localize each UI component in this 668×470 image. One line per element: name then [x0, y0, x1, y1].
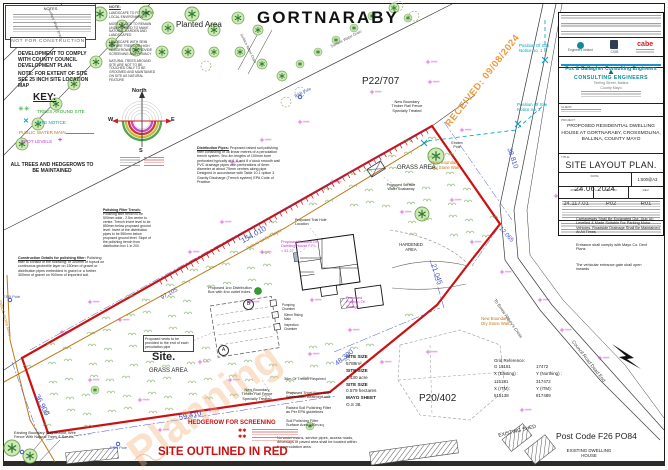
pumping-chamber-label: Pumping Chamber — [282, 304, 308, 312]
scale-value: 1:500@A3 — [633, 177, 662, 182]
landscape-note-p1: LANDSCAPE TO FIT IN WITH LOCAL ENVIRONME… — [109, 12, 158, 20]
title-block: Engineers Ireland CIOB cabe Fox & Gallag… — [558, 12, 664, 236]
cabe-tagline — [636, 49, 654, 54]
vents-note: Proposed vents to be provided to the end… — [143, 335, 194, 352]
key-water-main-line — [66, 133, 94, 134]
compass-west: W — [108, 117, 113, 123]
cabe-logo: cabe — [636, 41, 654, 54]
carriageway-note: Carriageway Shall Be Excavated Out, Dug … — [576, 217, 660, 235]
job-number-row: JOB NO.24.117.01 DRG NO.P02 REV.R01 — [559, 187, 663, 199]
compass-south: S — [139, 148, 143, 154]
hedgerow-tree-icons: ✱✱✱✱ — [238, 429, 246, 441]
rev-cell: REV.R01 — [629, 187, 663, 198]
landscape-note-p2: MOST OF SITE TO REMAIN UNDISTURBED TO MA… — [109, 23, 158, 39]
key-trees-label: TREES AROUND SITE — [37, 109, 85, 114]
ciob-crest-icon — [610, 40, 618, 49]
mayo-sheet-label: MAYO SHEET — [346, 395, 392, 402]
gate-note: The vehicular entrance gate shall open i… — [576, 263, 648, 272]
grid-ref-itm-x-label: X (ITM): — [494, 386, 536, 391]
logo-row: Engineers Ireland CIOB cabe — [559, 38, 663, 57]
compass-north-label: North — [132, 88, 147, 94]
key-water-main-label: PUBLIC WATER MAIN — [19, 130, 66, 135]
grid-ref-easting-label: X (Easting) : — [494, 371, 536, 376]
grid-ref-easting: 115181 — [494, 379, 536, 384]
mayo-sheet-value: O.S 38. — [346, 402, 392, 409]
compass-east: E — [171, 117, 175, 123]
townland-title: GORTNARABY — [257, 8, 399, 28]
trees-maintained-note: ALL TREES AND HEDGEROWS TO BE MAINTAINED — [10, 163, 94, 175]
extent-note: NOTE: FOR EXTENT OF SITE SEE 25 INCH SIT… — [18, 72, 94, 90]
filter-area-note: Soil Polishing Filter Surface Area 140m.… — [286, 419, 332, 428]
raised-filter-note: Raised Soil Polishing Filter as Per EPA … — [286, 406, 332, 415]
polishing-trench-note: Polishing Filter Trench: Polishing filte… — [103, 208, 155, 248]
org-address-2: County Mayo — [559, 86, 663, 91]
landscape-note: NOTE: LANDSCAPE TO FIT IN WITH LOCAL ENV… — [109, 5, 158, 83]
key-spot-levels-icon: + — [58, 137, 62, 145]
consulting-engineer-block: ▲ CONSULTING ENGINEERS Teeling Street, B… — [559, 68, 663, 104]
distribution-pipes-note: Distribution Pipes: Proposed raised soil… — [197, 146, 281, 184]
landscape-note-title: NOTE: — [109, 5, 121, 9]
dwelling-position-label: Proposed Position Of Dwelling House F.F.… — [281, 240, 317, 253]
grid-reference-title: Grid Reference: — [494, 358, 578, 363]
notes-micro-text-2 — [13, 26, 91, 33]
key-spot-levels-label: SPOT LEVELS — [21, 139, 52, 144]
esb-pole-label-3: ESB Pole — [110, 446, 127, 451]
date-scale-row: DATE:24.06.2024 1:500@A3 — [559, 173, 663, 187]
new-boundary-fence-label-2: New Boundary Timber Rail Fence Specially… — [239, 388, 275, 401]
percolation-marker-b: B — [243, 299, 254, 310]
compass-legend-right — [144, 157, 164, 167]
site-size-r2-value: 1.430 acre — [346, 375, 392, 382]
drg-cell: DRG NO.P02 — [594, 187, 629, 198]
grass-area-label-2: GRASS AREA — [149, 368, 188, 375]
date-label: DATE: — [560, 174, 630, 178]
planted-area-label: Planted Area — [176, 20, 222, 29]
drawing-title-label: TITLE: — [561, 155, 661, 159]
existing-boundary-note: Existing Boundary Clay Mound, Wire Fence… — [14, 431, 76, 440]
esb-pole-label-2: ESB Pole — [3, 295, 20, 300]
percolation-marker-a: A — [218, 345, 229, 356]
development-note: DEVELOPMENT TO COMPLY WITH COUNTY COUNCI… — [18, 52, 94, 70]
site-label: Site. — [152, 351, 175, 364]
trial-hole-label: Proposed Trial Hole Location — [295, 218, 327, 226]
key-site-notice-icon: ✕ — [23, 118, 29, 126]
grid-ref-itm-y-label: Y (ITM): — [536, 386, 578, 391]
inspection-chamber-label: Inspection Chamber — [284, 324, 310, 332]
hardened-area-label: HARDENED AREA — [397, 243, 425, 253]
project-label: PROJECT: — [561, 118, 661, 122]
drawing-title-row: TITLE:SITE LAYOUT PLAN. — [559, 154, 663, 173]
project-row: PROJECT:PROPOSED RESIDENTIAL DWELLING HO… — [559, 117, 663, 154]
landscape-note-p4: NATURAL TREES AROUND SITE ARE NOT TO BE … — [109, 60, 158, 83]
disclaimer-micro — [562, 201, 660, 218]
cabe-text: cabe — [637, 41, 653, 48]
eircom-pole-label: Eircom Pole — [449, 141, 465, 149]
key-title: KEY: — [33, 92, 56, 104]
parcel-p22-707: P22/707 — [362, 76, 399, 88]
drg-label: DRG NO. — [595, 188, 627, 192]
job-cell: JOB NO.24.117.01 — [559, 187, 594, 198]
key-trees-icon: ✳✳ — [18, 106, 30, 114]
date-cell: DATE:24.06.2024 — [559, 173, 632, 186]
existing-dwelling-label: EXISTING DWELLING HOUSE — [563, 448, 615, 458]
trench-required-note: 36m Of Trench Required — [284, 377, 328, 381]
garage-position-label: Proposed Position Of Garage — [346, 296, 376, 309]
site-outlined-in-red: SITE OUTLINED IN RED — [158, 446, 288, 460]
grid-ref-northing-label: Y (Northing) : — [536, 371, 578, 376]
site-size-r3-value: 0.579 hectares — [346, 388, 392, 395]
grid-ref-g-n: 17472 — [536, 364, 578, 369]
polishing-trench-body: Polishing filter trench to be 500mm wide… — [103, 212, 151, 248]
key-site-notice-label: SITE NOTICE — [37, 120, 66, 125]
revision-table — [559, 13, 663, 38]
revision-row-2 — [561, 23, 661, 28]
hedgerow-label: HEDGEROW FOR SCREENING — [188, 420, 276, 427]
compass-legend-left — [120, 157, 140, 167]
client-row: CLIENT: — [559, 104, 663, 117]
construction-details-note: Construction Details for polishing filte… — [18, 256, 108, 277]
client-micro — [561, 109, 601, 112]
firm-underline — [561, 64, 661, 66]
post-code-label: Post Code F26 PO84 — [556, 431, 637, 441]
rising-main-label: 50mm Rising Main — [284, 314, 310, 322]
grid-ref-itm-x: 515138 — [494, 393, 536, 398]
not-for-construction-stamp: NOT FOR CONSTRUCTION — [10, 37, 86, 48]
site-size-r2-label: SITE SIZE — [346, 368, 392, 375]
site-size-table: SITE SIZE 5788m² SITE SIZE 1.430 acre SI… — [346, 354, 392, 409]
site-size-r3-label: SITE SIZE — [346, 382, 392, 389]
grid-ref-g-e: G 15181 — [494, 364, 536, 369]
soakaway-label: Proposed Surface Water Soakaway — [386, 183, 416, 191]
ciob-logo: CIOB — [610, 40, 618, 55]
site-layout-plan-sheet: Planning RECEIVED: 09/08/2024 NOTES NOT … — [0, 0, 668, 470]
rev-label: REV. — [630, 188, 662, 192]
drawing-title: SITE LAYOUT PLAN. — [561, 160, 661, 170]
grid-reference-block: Grid Reference: G 15181 17472 X (Easting… — [494, 358, 578, 398]
engineers-ireland-text: Engineers Ireland — [568, 48, 593, 52]
site-notice-2-label: Position Of Site Notice no. 2 — [517, 102, 555, 112]
hedgerow-micro-notes — [252, 429, 298, 442]
engineers-ireland-logo: Engineers Ireland — [568, 42, 593, 53]
org-contact-micro — [581, 91, 641, 97]
scale-cell: 1:500@A3 — [632, 173, 663, 186]
site-size-r1-label: SITE SIZE — [346, 354, 392, 361]
landscape-note-p3: LANDSCAPE WITH SEMI MATURE TREES OR HIGH… — [109, 41, 158, 57]
grass-area-label-1: GRASS AREA — [397, 165, 436, 172]
entrance-note: Entrance shall comply with Mayo Co. Devt… — [576, 243, 648, 252]
grid-ref-northing: 317472 — [536, 379, 578, 384]
revision-row-3 — [561, 31, 661, 36]
distribution-pipes-body: Proposed raised soil polishing filter co… — [197, 146, 280, 184]
revision-row-1 — [561, 15, 661, 20]
distribution-box-label: Proposed 1no Distribution Box with 4no o… — [208, 286, 258, 295]
treatment-unit-note: Proposed Tricel Novo IE6+ Wastewater tre… — [286, 391, 334, 400]
new-boundary-fence-label-1: New Boundary Timber Rail Fence Specially… — [390, 100, 424, 113]
project-text: PROPOSED RESIDENTIAL DWELLING HOUSE AT G… — [561, 124, 661, 144]
site-notice-1-label: Position Of Site Notice no. 1 — [519, 43, 557, 53]
grid-ref-itm-y: 817489 — [536, 393, 578, 398]
ciob-text: CIOB — [611, 50, 619, 54]
site-size-r1-value: 5788m² — [346, 361, 392, 368]
parcel-p20-402: P20/402 — [419, 393, 456, 405]
job-label: JOB NO. — [560, 188, 592, 192]
